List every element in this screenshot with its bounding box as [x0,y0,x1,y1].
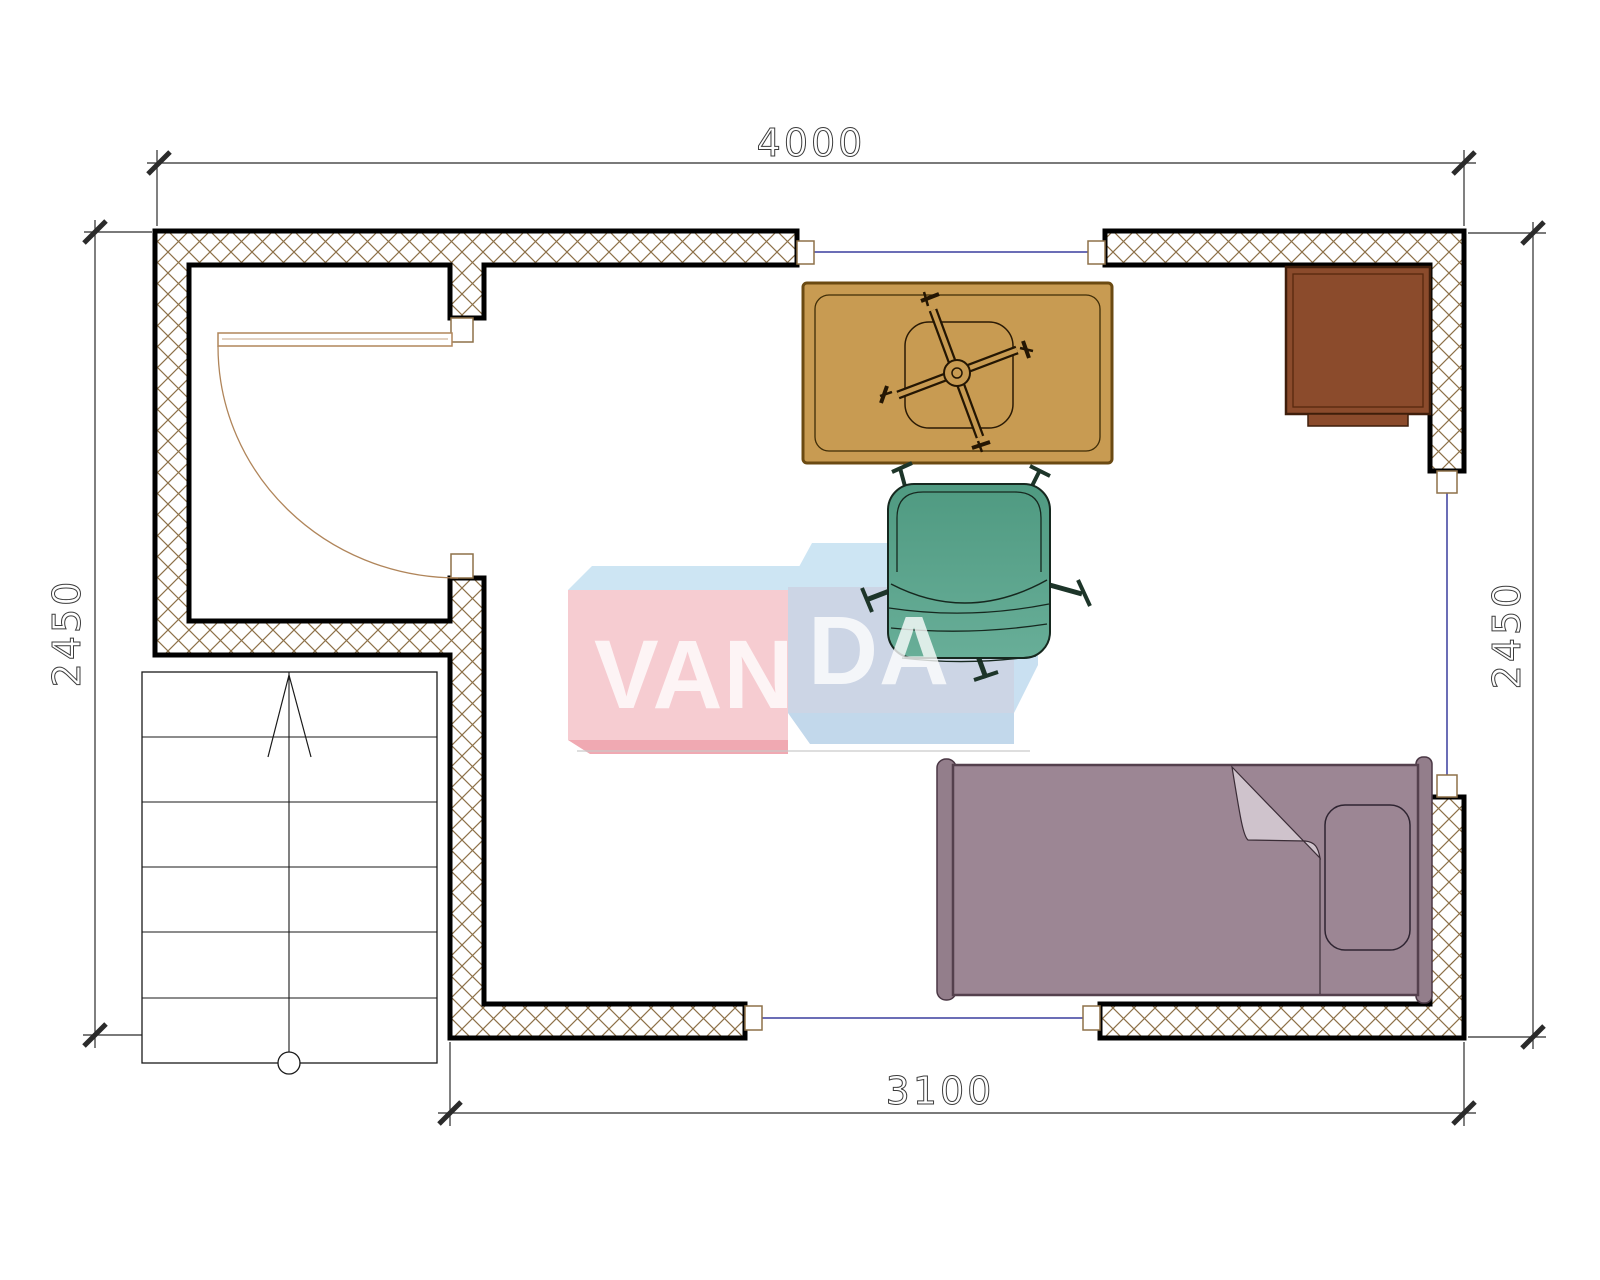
door-jamb-marker [451,318,473,342]
door-leaf [218,333,452,346]
door [218,318,473,578]
door-swing-arc [218,346,458,578]
window-frame-marker [1088,241,1105,264]
watermark-text-van: VAN [594,620,795,729]
dimension-left-label: 2450 [45,579,89,688]
window-frame-marker [1437,471,1457,493]
window-frame-marker [1437,775,1457,797]
watermark-blue-box-bottom [788,713,1014,744]
desk [803,283,1112,463]
bed-pillow [1325,805,1410,950]
stairs-start-circle [278,1052,300,1074]
door-jamb-marker [451,554,473,578]
dimension-bottom-label: 3100 [886,1069,995,1113]
window-right [1437,471,1457,797]
window-frame-marker [1083,1006,1100,1030]
watermark-pink-box-top [568,566,812,590]
window-frame-marker [797,241,814,264]
chair-base-hub [944,360,970,386]
cabinet [1286,267,1430,426]
floor-plan-page: 4000 2450 2450 3100 [0,0,1600,1280]
window-frame-marker [745,1006,762,1030]
window-bottom [745,1006,1100,1030]
stairs [142,672,437,1074]
dimension-top-label: 4000 [757,121,866,165]
floor-plan-canvas: 4000 2450 2450 3100 [0,0,1600,1280]
cabinet-body [1286,267,1430,414]
watermark-text-da: DA [808,596,950,705]
cabinet-drawer-tab [1308,414,1408,426]
bed [937,757,1432,1003]
window-top [797,241,1105,264]
dimension-right-label: 2450 [1485,581,1529,690]
